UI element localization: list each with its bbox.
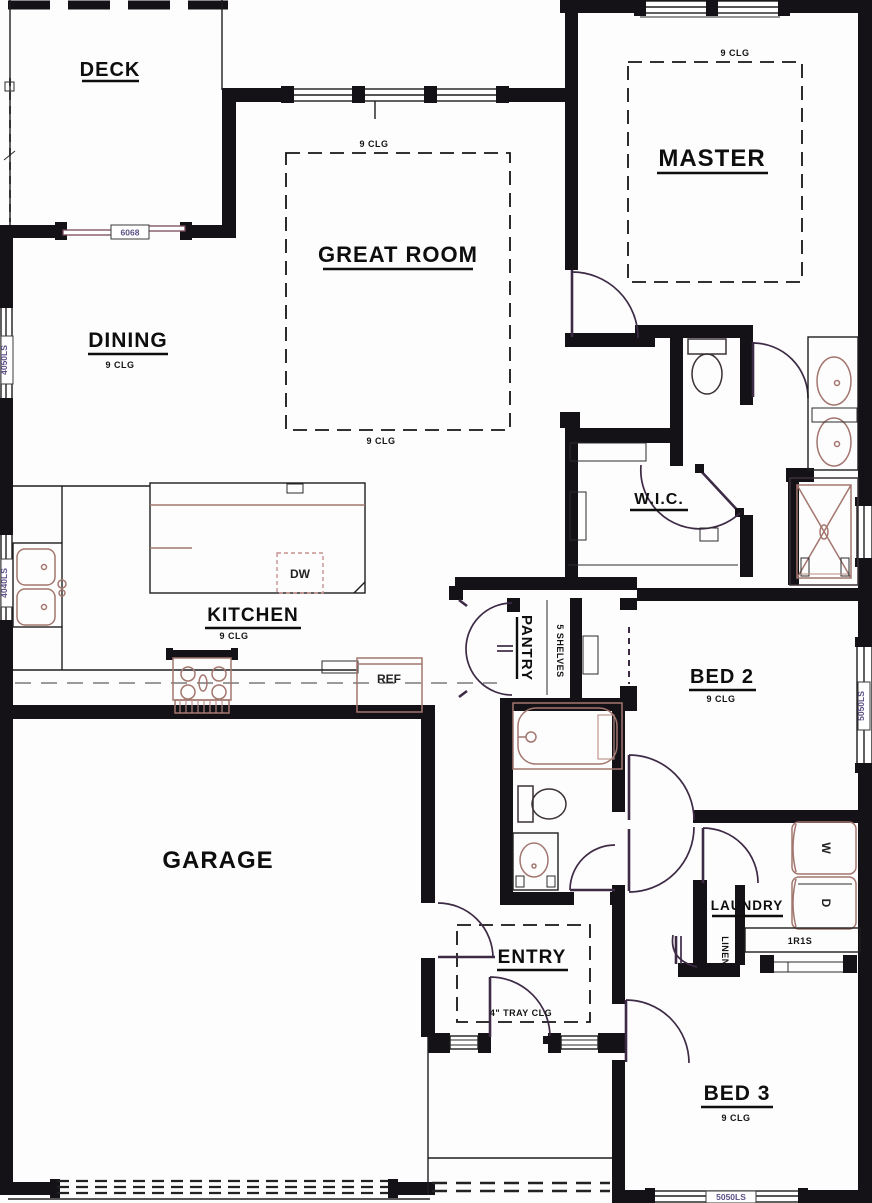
room-label-deck: DECK bbox=[80, 59, 141, 81]
washer-label: W bbox=[819, 842, 833, 854]
step-label: 1R1S bbox=[788, 936, 813, 946]
room-label-pantry: PANTRY bbox=[518, 615, 535, 681]
room-label-dining: DINING bbox=[88, 329, 168, 352]
entry-sidelight-left bbox=[450, 1036, 478, 1049]
hall-vanity bbox=[513, 833, 558, 890]
deck-sliding-door: 6068 bbox=[63, 225, 185, 239]
master-door bbox=[572, 270, 638, 338]
master-toilet bbox=[688, 339, 726, 394]
dining-clg: 9 CLG bbox=[105, 360, 134, 370]
room-label-entry: ENTRY bbox=[498, 947, 567, 968]
kitchen-clg: 9 CLG bbox=[219, 631, 248, 641]
kitchen-window: 4040LS bbox=[0, 525, 13, 630]
great-room-clg-bottom: 9 CLG bbox=[366, 436, 395, 446]
entry-tray-clg: 4" TRAY CLG bbox=[490, 1008, 552, 1018]
bed3-window: 5050LS bbox=[645, 1188, 808, 1203]
bed2-clg: 9 CLG bbox=[706, 694, 735, 704]
room-label-bed2: BED 2 bbox=[690, 666, 754, 688]
room-label-master: MASTER bbox=[658, 145, 765, 172]
room-label-garage: GARAGE bbox=[162, 847, 273, 874]
dryer-label: D bbox=[819, 899, 833, 908]
shower bbox=[790, 478, 858, 585]
master-bath-door bbox=[753, 342, 808, 398]
entry-sidelight-right bbox=[561, 1036, 598, 1049]
room-label-kitchen: KITCHEN bbox=[207, 605, 298, 626]
laundry-door bbox=[703, 828, 758, 883]
great-room-clg-top: 9 CLG bbox=[359, 139, 388, 149]
refrigerator-label: REF bbox=[377, 672, 401, 686]
bathtub bbox=[513, 703, 622, 769]
linen-label: LINEN bbox=[720, 936, 730, 966]
deck-door-label: 6068 bbox=[121, 228, 140, 238]
dining-window: 4050LS bbox=[0, 298, 13, 408]
walls bbox=[0, 0, 872, 1203]
range bbox=[166, 648, 238, 713]
hall-bath-door bbox=[570, 845, 615, 890]
room-label-wic: W.I.C. bbox=[634, 491, 684, 508]
pantry-shelves-label: 5 SHELVES bbox=[555, 624, 565, 677]
ceiling-outlines bbox=[15, 62, 802, 1022]
room-label-great-room: GREAT ROOM bbox=[318, 242, 478, 267]
kitchen-window-label: 4040LS bbox=[0, 568, 9, 598]
master-window bbox=[634, 0, 790, 17]
floor-plan: 4050LS 4040LS 5050LS bbox=[0, 0, 872, 1203]
great-room-window bbox=[281, 86, 509, 119]
master-vanity bbox=[808, 337, 858, 470]
hall-door bbox=[629, 827, 694, 892]
dining-window-label: 4050LS bbox=[0, 345, 9, 375]
bed3-clg: 9 CLG bbox=[721, 1113, 750, 1123]
windows: 4050LS 4040LS 5050LS bbox=[0, 0, 872, 1203]
bed3-door bbox=[626, 1000, 689, 1063]
kitchen-island bbox=[150, 483, 365, 593]
great-room-ceiling-outline bbox=[286, 153, 510, 430]
closet-shelf bbox=[583, 636, 598, 674]
dishwasher-label: DW bbox=[290, 567, 311, 581]
garage-entry-door bbox=[438, 903, 495, 958]
room-label-laundry: LAUNDRY bbox=[711, 898, 784, 913]
master-clg: 9 CLG bbox=[720, 48, 749, 58]
fixtures bbox=[13, 337, 860, 972]
bed2-window-label: 5050LS bbox=[856, 691, 866, 721]
room-label-pantry-group: PANTRY bbox=[517, 615, 535, 681]
bed2-window: 5050LS bbox=[855, 637, 872, 773]
bed3-window-label: 5050LS bbox=[716, 1192, 746, 1202]
floor-plan-drawing: 4050LS 4040LS 5050LS bbox=[0, 0, 872, 1203]
roof-lines bbox=[4, 0, 612, 1199]
hall-toilet bbox=[518, 786, 566, 822]
room-label-bed3: BED 3 bbox=[704, 1082, 771, 1105]
bed2-door bbox=[629, 755, 694, 820]
